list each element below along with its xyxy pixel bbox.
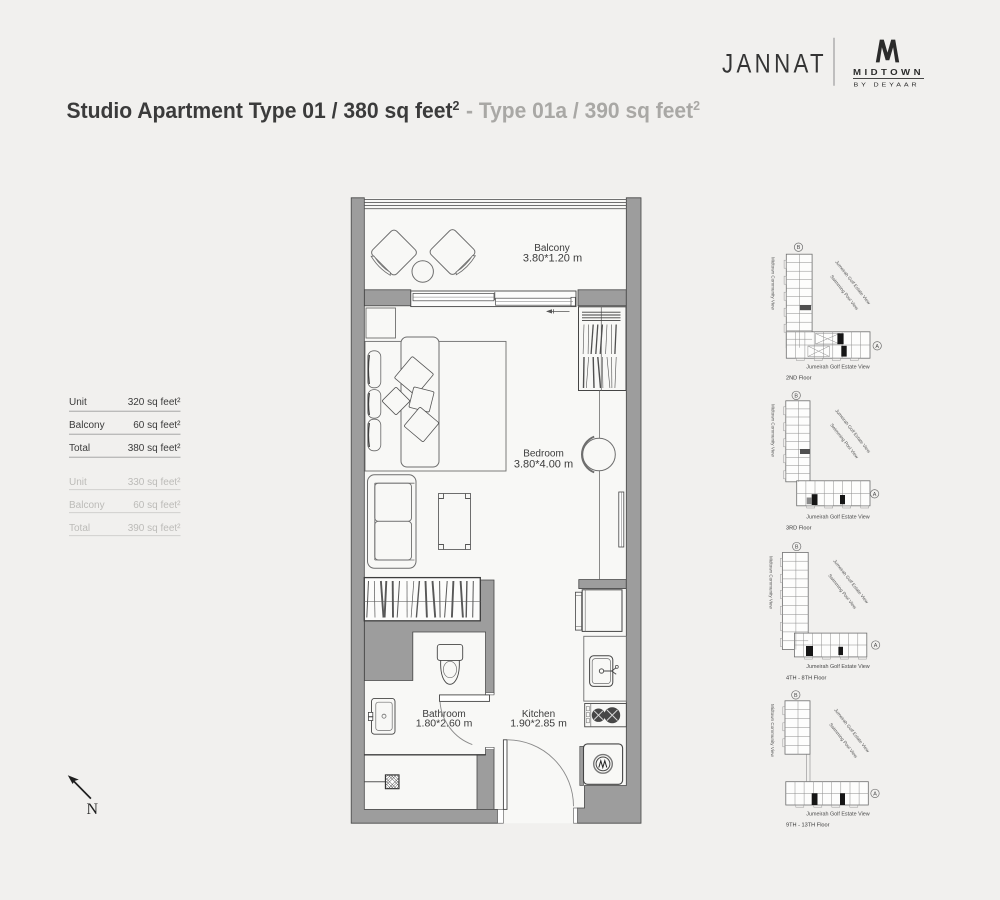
svg-text:Jumeirah Golf Estate View: Jumeirah Golf Estate View	[806, 812, 870, 818]
svg-text:9TH - 13TH Floor: 9TH - 13TH Floor	[786, 823, 830, 829]
svg-text:Total: Total	[69, 443, 90, 454]
svg-text:A: A	[873, 791, 877, 797]
svg-text:Jumeirah Golf Estate View: Jumeirah Golf Estate View	[806, 364, 870, 370]
svg-text:380 sq feet²: 380 sq feet²	[128, 443, 181, 454]
svg-text:A: A	[875, 344, 879, 350]
svg-text:MIDTOWN: MIDTOWN	[853, 67, 924, 77]
svg-text:4TH - 8TH Floor: 4TH - 8TH Floor	[786, 676, 827, 682]
svg-text:Total: Total	[69, 523, 90, 534]
svg-text:Midtown Community View: Midtown Community View	[769, 556, 774, 609]
svg-text:320 sq feet²: 320 sq feet²	[128, 397, 181, 408]
svg-text:B: B	[794, 393, 798, 399]
svg-text:A: A	[874, 643, 878, 649]
svg-text:Jumeirah Golf Estate View: Jumeirah Golf Estate View	[806, 514, 870, 520]
svg-text:3.80*4.00 m: 3.80*4.00 m	[514, 459, 573, 471]
svg-text:390 sq feet²: 390 sq feet²	[128, 523, 181, 534]
svg-text:Unit: Unit	[69, 397, 87, 408]
svg-text:Balcony: Balcony	[69, 420, 105, 431]
svg-text:BY DEYAAR: BY DEYAAR	[854, 82, 920, 88]
svg-text:B: B	[797, 245, 801, 251]
svg-text:JANNAT: JANNAT	[722, 49, 827, 79]
svg-text:60 sq feet²: 60 sq feet²	[133, 420, 181, 431]
svg-text:- Type 01a / 390 sq feet2: - Type 01a / 390 sq feet2	[466, 98, 700, 123]
svg-text:B: B	[795, 545, 799, 551]
svg-text:1.90*2.85 m: 1.90*2.85 m	[510, 718, 567, 730]
svg-text:3.80*1.20 m: 3.80*1.20 m	[523, 252, 582, 264]
svg-text:330 sq feet²: 330 sq feet²	[128, 477, 181, 488]
svg-text:Unit: Unit	[69, 477, 87, 488]
svg-text:2ND Floor: 2ND Floor	[786, 375, 812, 381]
svg-text:Studio Apartment Type 01 / 380: Studio Apartment Type 01 / 380 sq feet2	[67, 98, 460, 123]
svg-text:Midtown Community View: Midtown Community View	[771, 257, 776, 310]
svg-text:Midtown Community View: Midtown Community View	[770, 704, 775, 757]
svg-text:60 sq feet²: 60 sq feet²	[133, 500, 181, 511]
svg-text:Balcony: Balcony	[69, 500, 105, 511]
svg-text:N: N	[87, 801, 99, 818]
svg-text:1.80*2.60 m: 1.80*2.60 m	[416, 718, 473, 730]
svg-text:A: A	[873, 492, 877, 498]
svg-text:3RD Floor: 3RD Floor	[786, 526, 812, 532]
svg-text:Midtown Community View: Midtown Community View	[770, 404, 775, 457]
svg-text:Jumeirah Golf Estate View: Jumeirah Golf Estate View	[806, 664, 870, 670]
svg-text:B: B	[794, 693, 798, 699]
